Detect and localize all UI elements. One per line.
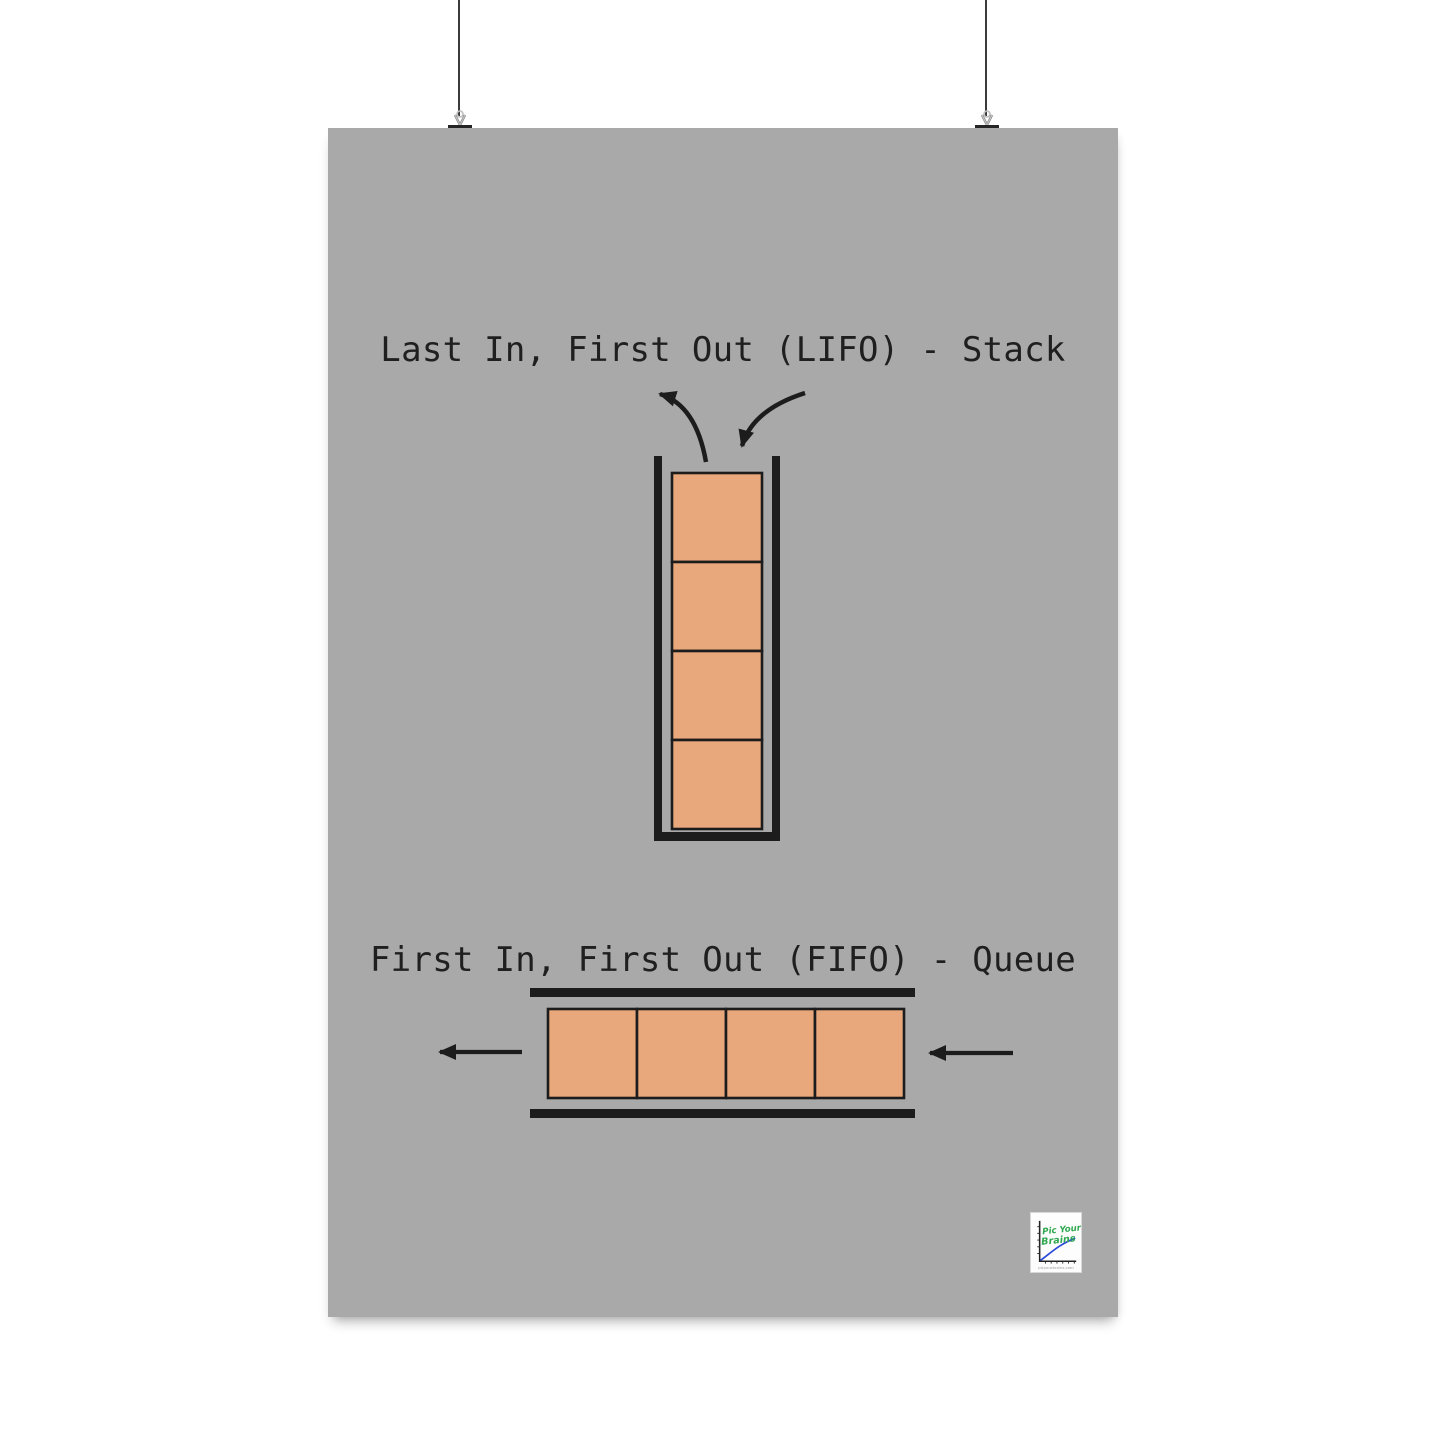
stack-and-queue-diagram	[328, 128, 1118, 1317]
poster: Last In, First Out (LIFO) - Stack First …	[328, 128, 1118, 1317]
logo-url: picyourbrains.com	[1038, 1265, 1074, 1270]
brand-logo: Pic Your Brains picyourbrains.com	[1030, 1212, 1082, 1273]
pop-arrow	[660, 394, 706, 462]
stack-box	[672, 740, 762, 829]
queue-box	[548, 1009, 637, 1098]
logo-chart-icon: Pic Your Brains picyourbrains.com	[1031, 1213, 1081, 1272]
queue-boxes	[548, 1009, 904, 1098]
stack-box	[672, 651, 762, 740]
queue-box	[726, 1009, 815, 1098]
hanging-string-right	[985, 0, 987, 116]
poster-mockup-scene: Last In, First Out (LIFO) - Stack First …	[0, 0, 1445, 1445]
push-arrow	[742, 393, 805, 446]
stack-box	[672, 473, 762, 562]
logo-text-line2: Brains	[1041, 1233, 1077, 1248]
queue-box	[815, 1009, 904, 1098]
hanging-string-left	[458, 0, 460, 116]
queue-box	[637, 1009, 726, 1098]
stack-boxes	[672, 473, 762, 829]
stack-box	[672, 562, 762, 651]
